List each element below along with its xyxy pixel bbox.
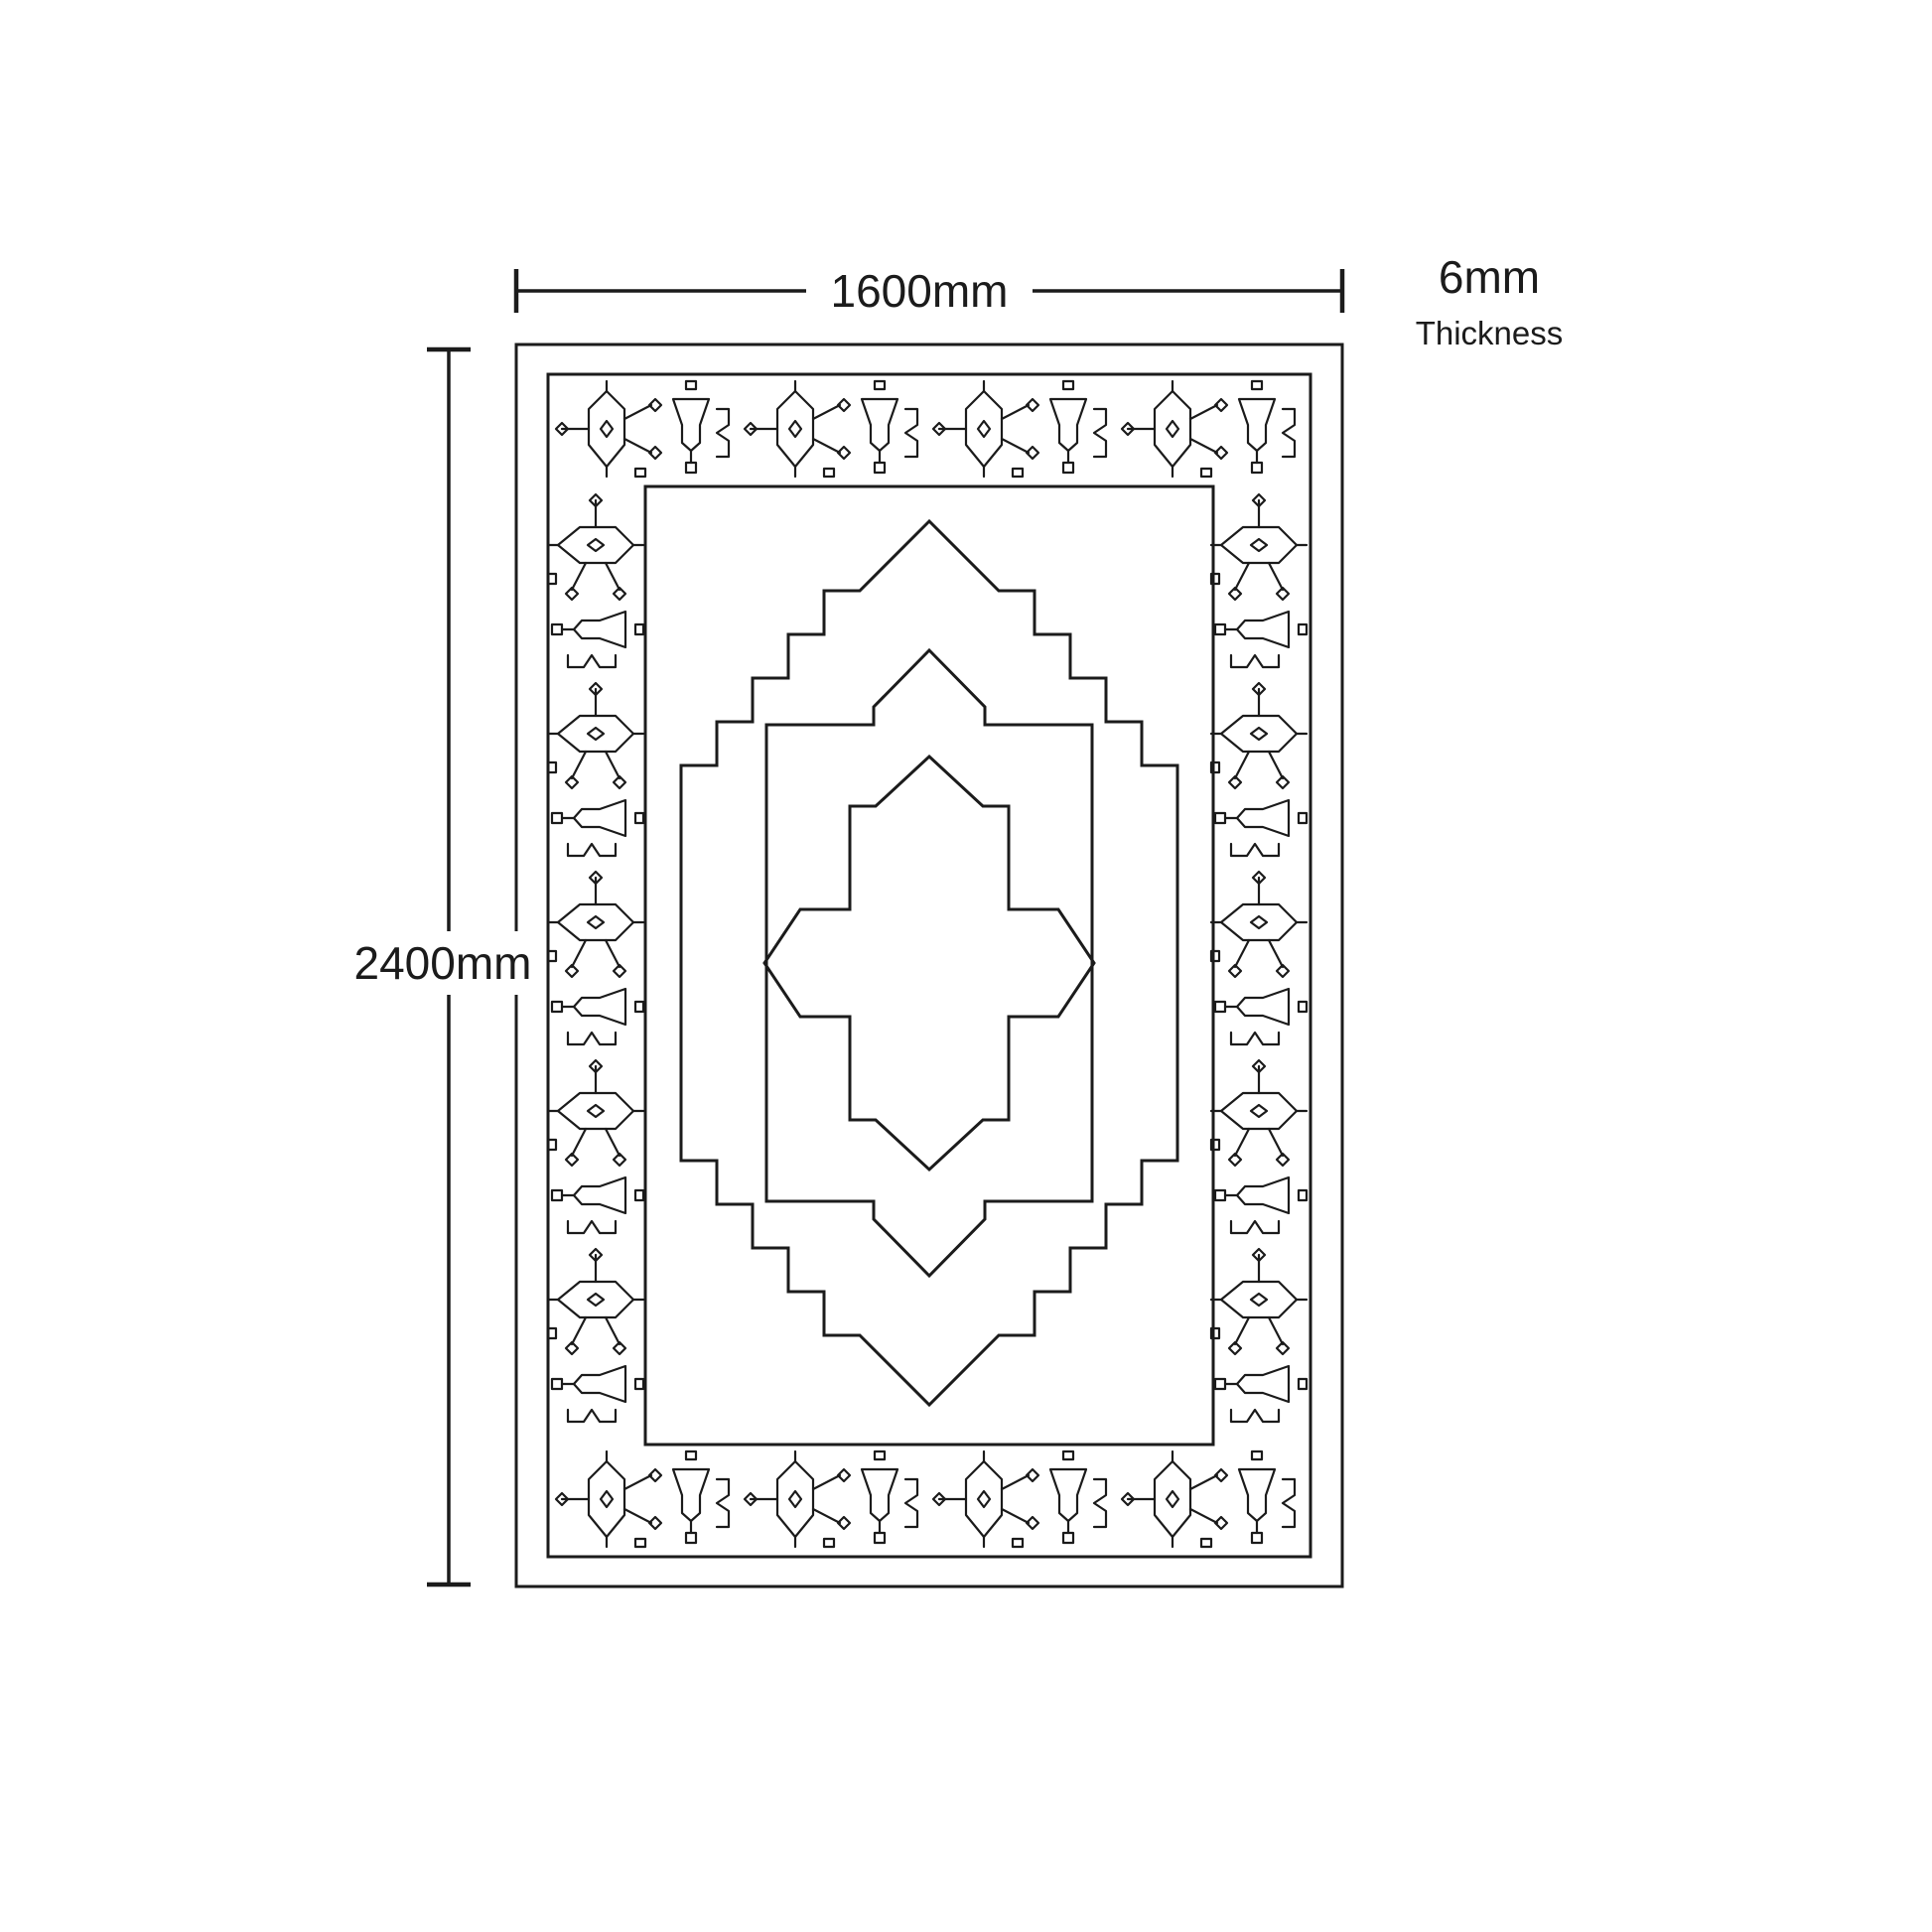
thickness-value-label: 6mm: [1439, 251, 1540, 303]
panel-border-frame-rect: [548, 374, 1311, 1557]
center-cross: [764, 757, 1094, 1170]
medallion-middle-outline: [766, 650, 1092, 1276]
ornament-border-band: [548, 381, 1307, 1547]
labels: 1600mm 2400mm 6mm Thickness: [354, 251, 1564, 989]
panel-outer-rect: [516, 345, 1342, 1587]
drawing-sheet: 1600mm 2400mm 6mm Thickness: [0, 0, 1932, 1932]
medallion-stepped-lozenge: [681, 521, 1177, 1405]
panel-dimension-drawing: 1600mm 2400mm 6mm Thickness: [0, 0, 1932, 1932]
thickness-caption-label: Thickness: [1416, 315, 1564, 351]
panel-field-rect: [645, 486, 1213, 1445]
ornament-band-left: [548, 494, 643, 1422]
ornament-band-top: [556, 381, 1295, 477]
ornament-band-bottom: [556, 1451, 1295, 1547]
panel-outline: [516, 345, 1342, 1587]
width-label: 1600mm: [831, 265, 1009, 317]
ornament-band-right: [1211, 494, 1307, 1422]
center-medallion: [681, 521, 1177, 1405]
height-label: 2400mm: [354, 937, 532, 989]
